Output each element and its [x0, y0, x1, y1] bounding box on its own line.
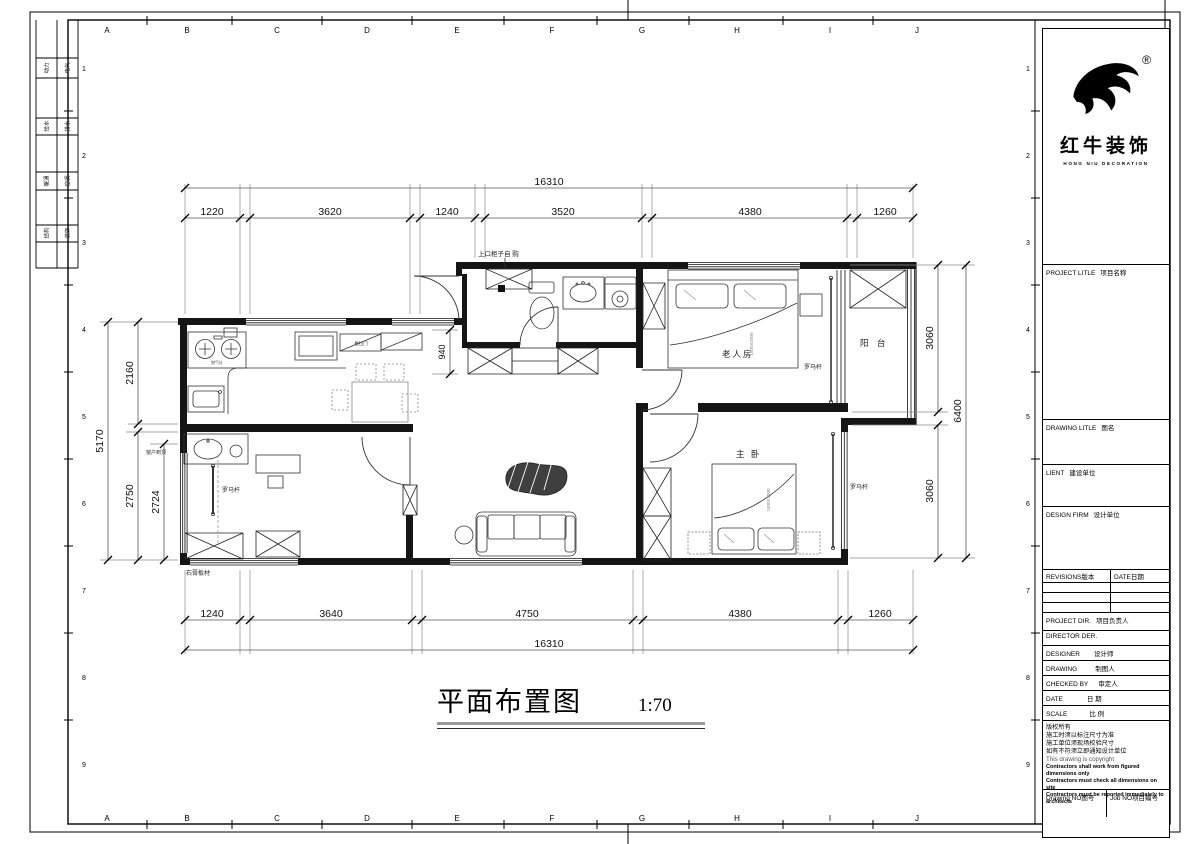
dim-right-seg: 3060	[924, 326, 936, 350]
dining-set	[332, 364, 418, 422]
elder-nightstand	[800, 294, 822, 316]
curtain-rod-label-left: 罗马杆	[222, 486, 240, 494]
sofa	[476, 512, 576, 556]
tb-date-cn: 日 期	[1087, 696, 1102, 703]
tb-scale-cn: 比 例	[1089, 711, 1104, 718]
grid-number: 6	[82, 501, 86, 508]
company-name-en: HONG NIU DECORATION	[1043, 161, 1169, 166]
grid-letter: A	[104, 814, 110, 823]
grid-letter: B	[184, 26, 189, 35]
tb-job-no-en: Job NO	[1110, 795, 1132, 802]
tb-revision-row	[1043, 592, 1169, 602]
tb-designer-en: DESIGNER	[1046, 651, 1080, 658]
grid-letter: D	[364, 814, 370, 823]
grid-letter: C	[274, 814, 280, 823]
room-label-master: 主 卧	[736, 449, 761, 459]
plan-title-block: 平面布置图 1:70	[437, 680, 705, 729]
tb-designer: DESIGNER设计师	[1043, 645, 1169, 660]
stove-label: 燃气灶	[211, 359, 223, 365]
tb-revisions-en: REVISIONS	[1046, 574, 1081, 581]
copyright-line: 如有不符须立即通知设计单位	[1046, 748, 1166, 756]
title-block: ® 红牛装饰 HONG NIU DECORATION PROJECT LITLE…	[1042, 28, 1170, 838]
vanity-2	[184, 434, 248, 464]
tb-project-dir-cn: 项目负责人	[1096, 618, 1129, 625]
tb-client: LIENT建设单位	[1043, 464, 1169, 506]
dim-bottom-seg: 4380	[728, 608, 752, 620]
room-label-balcony: 阳 台	[860, 338, 888, 348]
tb-checked-cn: 审定人	[1098, 681, 1118, 688]
grid-number: 1	[82, 66, 86, 73]
dim-left-seg: 2160	[124, 361, 136, 385]
window-full-note: 窗户到顶	[146, 449, 166, 456]
tb-revisions-header: REVISIONS版本 DATE日期	[1043, 569, 1169, 582]
tb-project-dir: PROJECT DIR.项目负责人	[1043, 612, 1169, 630]
copyright-line: Contractors shall work from figured dime…	[1046, 764, 1166, 778]
grid-number: 8	[1026, 675, 1030, 682]
grid-letter: B	[184, 814, 189, 823]
tb-drawing-no-en: Drawing NO	[1046, 795, 1081, 802]
tb-drawing-title-en: DRAWING LITLE	[1046, 425, 1096, 432]
curtain-rod-label-master: 罗马杆	[850, 483, 868, 491]
grid-letter: E	[454, 26, 459, 35]
dim-top-seg: 1260	[873, 206, 897, 218]
side-table	[455, 526, 473, 544]
tb-project-title: PROJECT LITLE项目名称	[1043, 264, 1169, 419]
grid-number: 5	[82, 414, 86, 421]
tb-director: DIRECTOR DER.	[1043, 630, 1169, 645]
dim-top-seg: 1220	[200, 206, 224, 218]
tb-date: DATE日 期	[1043, 690, 1169, 705]
tb-drawing-no-cn: 图号	[1081, 795, 1094, 802]
copyright-line: 施工时须以标注尺寸为准	[1046, 732, 1166, 740]
tb-job-no-cn: 项目编号	[1132, 795, 1158, 802]
countersign-cell: 装饰	[64, 227, 72, 239]
curtain-rod-label-elder: 罗马杆	[804, 363, 822, 371]
tb-client-cn: 建设单位	[1069, 470, 1095, 477]
grid-number: 5	[1026, 414, 1030, 421]
desk	[256, 455, 300, 473]
dim-hall: 940	[437, 344, 447, 359]
tb-director-en: DIRECTOR DER.	[1046, 633, 1097, 640]
grid-letter: I	[829, 814, 831, 823]
dim-right-seg: 3060	[924, 479, 936, 503]
grid-letter: J	[915, 814, 919, 823]
tb-drafter-en: DRAWING	[1046, 666, 1077, 673]
walls	[178, 262, 916, 565]
dim-top-total: 16310	[534, 176, 563, 188]
tb-drafter: DRAWING制图人	[1043, 660, 1169, 675]
upper-cabinet-note: 上口柜子自 购	[478, 249, 519, 258]
tb-design-firm: DESIGN FIRM设计单位	[1043, 506, 1169, 569]
master-bed-size: 1800X2000	[766, 488, 771, 512]
dim-bottom-seg: 1260	[868, 608, 892, 620]
elder-bed-size: 1500X2000	[749, 332, 754, 356]
copyright-line: 施工单位须现场校验尺寸	[1046, 740, 1166, 748]
fridge	[295, 332, 337, 360]
tb-project-title-en: PROJECT LITLE	[1046, 270, 1095, 277]
dim-top-seg: 3620	[318, 206, 342, 218]
dim-top-seg: 4380	[738, 206, 762, 218]
grid-letter: F	[550, 814, 555, 823]
tb-checked: CHECKED BY审定人	[1043, 675, 1169, 690]
kitchen-sink	[188, 386, 224, 412]
tb-scale: SCALE比 例	[1043, 705, 1169, 720]
grid-letter: J	[915, 26, 919, 35]
grid-number: 9	[82, 762, 86, 769]
master-bed	[712, 464, 796, 554]
grid-letter: I	[829, 26, 831, 35]
coffee-table	[506, 462, 567, 495]
tb-project-title-cn: 项目名称	[1100, 270, 1126, 277]
range-hood	[224, 328, 237, 337]
copyright-line: This drawing is copyright	[1046, 756, 1166, 764]
grid-letter: D	[364, 26, 370, 35]
tb-checked-en: CHECKED BY	[1046, 681, 1088, 688]
tb-drawing-title-cn: 图名	[1101, 425, 1114, 432]
grid-letter: A	[104, 26, 110, 35]
dimension-ticks	[104, 184, 970, 654]
doors	[362, 276, 698, 485]
bath-vanity	[563, 277, 604, 309]
gypsum-board-note: 石膏板材	[186, 569, 210, 577]
grid-number: 6	[1026, 501, 1030, 508]
floor-drain	[498, 285, 505, 292]
tb-date-col-cn: 日期	[1131, 574, 1144, 581]
tb-copyright-notes: 版权所有 施工时须以标注尺寸为准 施工单位须现场校验尺寸 如有不符须立即通知设计…	[1043, 720, 1169, 789]
countersign-cell: 电气	[64, 62, 72, 74]
countersign-cell: 动力	[43, 62, 51, 73]
logo-bird-icon	[1063, 45, 1149, 121]
title-underline-thick	[437, 722, 705, 725]
windows	[180, 262, 915, 565]
dim-bottom-seg: 1240	[200, 608, 224, 620]
countersign-cell: 结构	[43, 227, 51, 239]
drawing-sheet: A B C D E F G H I J A B C D E F G H I J …	[0, 0, 1200, 844]
grid-letter: F	[550, 26, 555, 35]
copyright-line: 版权所有	[1046, 724, 1166, 732]
tb-revision-row	[1043, 602, 1169, 612]
tb-design-firm-en: DESIGN FIRM	[1046, 512, 1089, 519]
dim-right-total: 6400	[952, 399, 964, 423]
tb-project-dir-en: PROJECT DIR.	[1046, 618, 1091, 625]
dim-top-seg: 3520	[551, 206, 575, 218]
grid-number: 7	[82, 588, 86, 595]
tb-designer-cn: 设计师	[1094, 651, 1114, 658]
grid-number: 7	[1026, 588, 1030, 595]
plan-title: 平面布置图	[437, 680, 582, 719]
countersign-cell: 空调	[64, 175, 72, 187]
sliding-door-label: 推拉门	[354, 340, 368, 347]
grid-number: 2	[82, 153, 86, 160]
grid-number: 3	[1026, 240, 1030, 247]
grid-letter: H	[734, 814, 740, 823]
tb-date-col-en: DATE	[1114, 574, 1131, 581]
dim-bottom-seg: 4750	[515, 608, 539, 620]
grid-letter: E	[454, 814, 459, 823]
countersign-strip: 动力 电气 给水 排水 暖通 空调 结构 装饰	[36, 20, 78, 268]
left-curtain-rod	[211, 455, 218, 545]
elder-curtain-rod	[829, 276, 832, 403]
countersign-cell: 排水	[64, 120, 72, 132]
grid-letter: G	[639, 26, 645, 35]
tb-scale-en: SCALE	[1046, 711, 1067, 718]
grid-letter: G	[639, 814, 645, 823]
grid-number: 3	[82, 240, 86, 247]
grid-letter: H	[734, 26, 740, 35]
registered-mark: ®	[1142, 53, 1151, 67]
grid-number: 4	[1026, 327, 1030, 334]
kitchen-counter	[228, 368, 346, 414]
company-logo: ® 红牛装饰 HONG NIU DECORATION	[1043, 29, 1169, 264]
tb-drafter-cn: 制图人	[1095, 666, 1115, 673]
countersign-cell: 暖通	[43, 175, 51, 187]
tb-number-row: Drawing NO图号 Job NO项目编号	[1043, 789, 1169, 817]
plan-scale: 1:70	[638, 695, 672, 717]
dim-bottom-seg: 3640	[319, 608, 343, 620]
grid-number: 1	[1026, 66, 1030, 73]
washing-machine	[605, 277, 636, 309]
grid-number: 8	[82, 675, 86, 682]
dim-left-seg: 2750	[124, 484, 136, 508]
grid-number: 4	[82, 327, 86, 334]
tb-revision-row	[1043, 582, 1169, 592]
tb-revisions-cn: 版本	[1081, 574, 1094, 581]
tb-date-en: DATE	[1046, 696, 1063, 703]
dimensions: 16310 1220 3620 1240 3520 4380 1260 1240…	[94, 176, 975, 654]
countersign-cell: 给水	[43, 120, 51, 132]
dim-bottom-total: 16310	[534, 638, 563, 650]
grid-letter: C	[274, 26, 280, 35]
dim-left-total: 5170	[94, 429, 106, 453]
dim-left-seg: 2724	[150, 490, 162, 514]
master-curtain-rod	[831, 432, 834, 549]
desk-chair	[268, 476, 283, 488]
tb-design-firm-cn: 设计单位	[1094, 512, 1120, 519]
title-underline-thin	[437, 728, 705, 729]
dim-top-seg: 1240	[435, 206, 459, 218]
grid-number: 9	[1026, 762, 1030, 769]
tb-drawing-title: DRAWING LITLE图名	[1043, 419, 1169, 464]
toilet	[529, 282, 554, 329]
tb-client-en: LIENT	[1046, 470, 1064, 477]
sliding-door-cabinet	[340, 333, 422, 351]
grid-number: 2	[1026, 153, 1030, 160]
company-name-cn: 红牛装饰	[1043, 131, 1169, 158]
